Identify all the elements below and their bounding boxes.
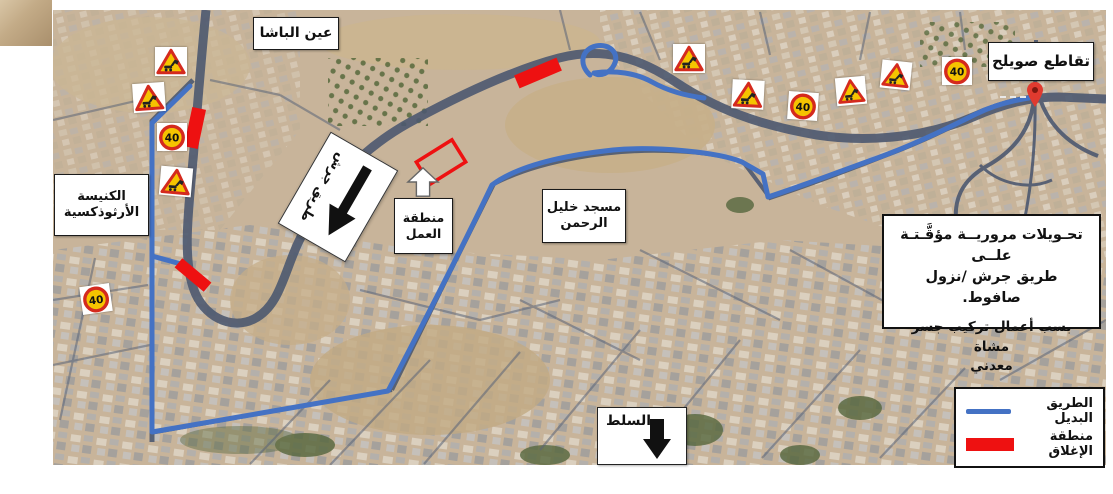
roadworks-warning-sign-icon	[880, 60, 913, 91]
label-suweileh-intersection: تقاطع صويلح	[988, 42, 1094, 81]
legend-row-alt-route: الطريق البديل	[966, 396, 1093, 426]
info-line1: تحـويلات مروريــة مؤقَّـتـة علــى	[894, 225, 1089, 267]
info-line3: بسب أعمال تركيب جسر مشاة	[894, 318, 1089, 357]
traffic-diversion-map-page: { "labels": { "ain_al_basha": "عين الباش…	[0, 0, 1113, 494]
speed-limit-40-sign	[157, 123, 187, 151]
roadworks-warning-sign-icon	[159, 166, 193, 198]
pin-leader-dashes	[1000, 96, 1026, 98]
speed-limit-40-sign	[79, 283, 113, 315]
diversion-info-box: تحـويلات مروريــة مؤقَّـتـة علــى طريق ج…	[882, 214, 1101, 329]
legend-row-closure: منطقة الإغلاق	[966, 429, 1093, 459]
label-salt-direction: السلط	[597, 407, 687, 465]
label-line1: مسجد خليل	[543, 200, 625, 216]
label-text: عين الباشا	[254, 25, 338, 43]
info-line4: معدني	[894, 357, 1089, 377]
down-arrow-icon	[642, 417, 672, 461]
map-corner-fragment	[0, 0, 52, 46]
label-line2: العمل	[395, 226, 452, 242]
speed-limit-40-sign	[942, 57, 972, 85]
speed-limit-40-sign	[787, 91, 819, 121]
roadworks-warning-sign-icon	[835, 76, 867, 107]
closure-label: منطقة الإغلاق	[1014, 429, 1093, 459]
closure-swatch	[966, 438, 1014, 451]
label-line2: الرحمن	[543, 216, 625, 232]
label-ain-al-basha: عين الباشا	[253, 17, 339, 50]
roadworks-warning-sign-icon	[731, 79, 764, 110]
label-orthodox-church: الكنيسة الأرثوذكسية	[54, 174, 149, 236]
label-work-zone: منطقة العمل	[394, 198, 453, 254]
label-khalil-rahman-mosque: مسجد خليل الرحمن	[542, 189, 626, 243]
roadworks-warning-sign-icon	[155, 47, 187, 76]
info-line2: طريق جرش /نزول صافوط.	[894, 267, 1089, 309]
label-line2: الأرثوذكسية	[55, 205, 148, 221]
roadworks-warning-sign-icon	[673, 44, 705, 73]
label-line1: الكنيسة	[55, 189, 148, 205]
alt-route-label: الطريق البديل	[1011, 396, 1093, 426]
label-line1: منطقة	[395, 210, 452, 226]
label-text: تقاطع صويلح	[989, 52, 1093, 71]
roadworks-warning-sign-icon	[132, 82, 166, 113]
work-zone-up-arrow-icon	[406, 164, 440, 200]
alt-route-swatch	[966, 409, 1011, 414]
location-pin-icon	[1027, 82, 1043, 108]
map-legend: الطريق البديل منطقة الإغلاق	[954, 387, 1105, 468]
